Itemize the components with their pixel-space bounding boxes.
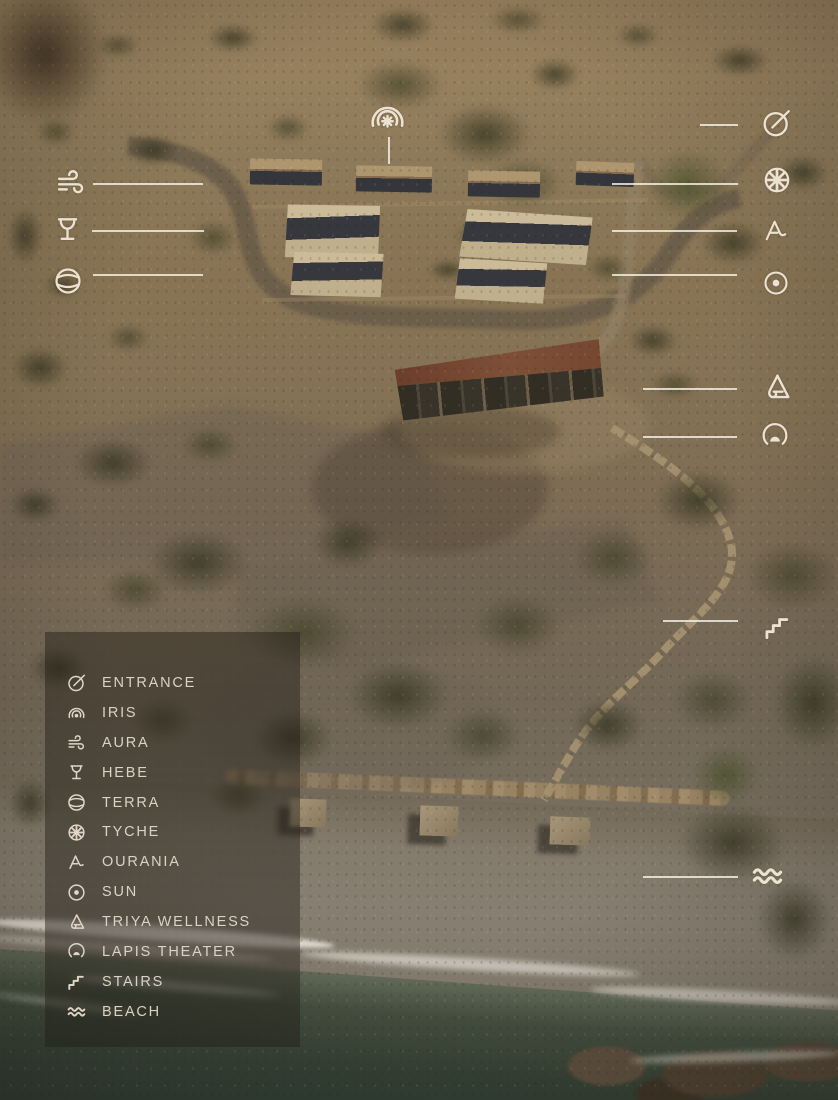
- entrance-icon: [66, 672, 87, 693]
- legend-item-sun: SUN: [66, 877, 300, 907]
- hebe-icon: [51, 213, 84, 246]
- aura-icon: [66, 732, 87, 753]
- tyche-icon: [66, 822, 87, 843]
- aura-icon: [54, 165, 88, 199]
- leader-line-triya-wellness: [643, 388, 737, 390]
- map-marker-hebe[interactable]: [51, 213, 84, 246]
- map-marker-triya-wellness[interactable]: [760, 371, 794, 405]
- legend-item-tyche: TYCHE: [66, 817, 300, 847]
- ourania-icon: [66, 852, 87, 873]
- legend-label: TERRA: [102, 795, 160, 811]
- tyche-icon: [761, 164, 793, 196]
- legend-label: HEBE: [102, 765, 149, 781]
- legend-label: TRIYA WELLNESS: [102, 914, 251, 930]
- leader-line-stairs: [663, 620, 738, 622]
- legend-label: SUN: [102, 884, 138, 900]
- leader-line-terra: [93, 274, 203, 276]
- stairs-icon: [762, 611, 793, 642]
- legend-label: IRIS: [102, 705, 137, 721]
- leader-line-tyche: [612, 183, 738, 185]
- map-marker-aura[interactable]: [54, 165, 88, 199]
- terra-icon: [66, 792, 87, 813]
- leader-line-hebe: [92, 230, 204, 232]
- legend-item-lapis-theater: LAPIS THEATER: [66, 937, 300, 967]
- legend-item-stairs: STAIRS: [66, 967, 300, 997]
- beach-icon: [750, 858, 785, 893]
- map-marker-sun[interactable]: [761, 268, 791, 298]
- legend-item-terra: TERRA: [66, 788, 300, 818]
- map-marker-ourania[interactable]: [761, 216, 791, 246]
- sun-icon: [761, 268, 791, 298]
- triya-wellness-icon: [66, 912, 87, 933]
- map-marker-lapis-theater[interactable]: [759, 420, 791, 452]
- leader-line-entrance: [700, 124, 738, 126]
- legend-item-hebe: HEBE: [66, 758, 300, 788]
- stairs-icon: [66, 971, 87, 992]
- leader-line-beach: [643, 876, 738, 878]
- leader-line-aura: [93, 183, 203, 185]
- legend-item-ourania: OURANIA: [66, 847, 300, 877]
- ourania-icon: [761, 216, 791, 246]
- lapis-theater-icon: [66, 941, 87, 962]
- entrance-icon: [760, 106, 793, 139]
- terra-icon: [52, 265, 84, 297]
- hebe-icon: [66, 762, 87, 783]
- legend-label: ENTRANCE: [102, 675, 196, 691]
- legend-item-triya-wellness: TRIYA WELLNESS: [66, 907, 300, 937]
- iris-icon: [66, 702, 87, 723]
- legend-item-aura: AURA: [66, 728, 300, 758]
- resort-map-page: ENTRANCE IRIS AURA HEBE TERRA TYCHE OURA…: [0, 0, 838, 1100]
- map-marker-iris[interactable]: [369, 98, 406, 135]
- beach-icon: [66, 1001, 87, 1022]
- legend-item-entrance: ENTRANCE: [66, 668, 300, 698]
- map-marker-beach[interactable]: [750, 858, 785, 893]
- legend-label: STAIRS: [102, 974, 164, 990]
- legend-item-iris: IRIS: [66, 698, 300, 728]
- legend-label: LAPIS THEATER: [102, 944, 237, 960]
- legend-label: AURA: [102, 735, 150, 751]
- map-marker-stairs[interactable]: [762, 611, 793, 642]
- legend-label: OURANIA: [102, 854, 181, 870]
- leader-line-iris: [388, 137, 390, 164]
- legend-label: TYCHE: [102, 824, 160, 840]
- triya-wellness-icon: [760, 371, 794, 405]
- lapis-theater-icon: [759, 420, 791, 452]
- map-marker-entrance[interactable]: [760, 106, 793, 139]
- sun-icon: [66, 882, 87, 903]
- map-marker-tyche[interactable]: [761, 164, 793, 196]
- legend-label: BEACH: [102, 1004, 161, 1020]
- leader-line-sun: [612, 274, 737, 276]
- leader-line-lapis-theater: [643, 436, 737, 438]
- iris-star-icon: [369, 98, 406, 135]
- legend-item-beach: BEACH: [66, 997, 300, 1027]
- leader-line-ourania: [612, 230, 737, 232]
- map-legend: ENTRANCE IRIS AURA HEBE TERRA TYCHE OURA…: [45, 632, 300, 1047]
- map-marker-terra[interactable]: [52, 265, 84, 297]
